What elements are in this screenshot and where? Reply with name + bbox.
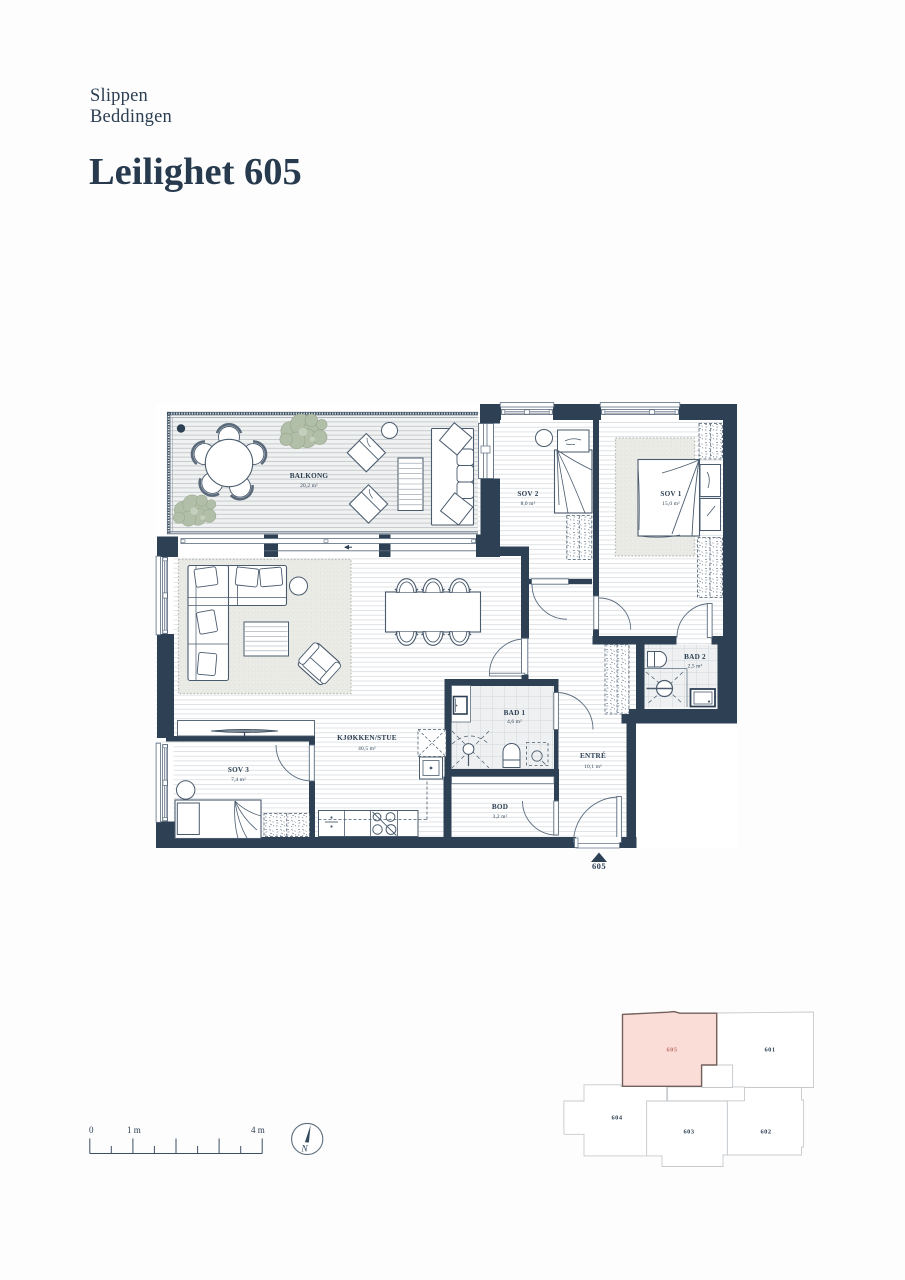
svg-text:605: 605 (592, 861, 606, 871)
svg-text:SOV 2: SOV 2 (517, 490, 538, 498)
svg-text:SOV 1: SOV 1 (660, 490, 681, 498)
svg-text:BALKONG: BALKONG (290, 472, 329, 480)
svg-text:0: 0 (89, 1125, 94, 1135)
svg-text:2,5 m²: 2,5 m² (688, 664, 703, 670)
svg-text:603: 603 (683, 1129, 694, 1136)
svg-text:10,1 m²: 10,1 m² (584, 764, 602, 770)
svg-text:Leilighet 605: Leilighet 605 (89, 151, 302, 193)
svg-text:601: 601 (764, 1047, 775, 1054)
svg-text:15,0 m²: 15,0 m² (662, 501, 680, 507)
svg-text:SOV 3: SOV 3 (228, 766, 249, 774)
svg-text:Beddingen: Beddingen (90, 107, 172, 127)
svg-text:BAD 2: BAD 2 (684, 653, 706, 661)
svg-text:8,0 m²: 8,0 m² (521, 501, 536, 507)
svg-text:3,2 m²: 3,2 m² (493, 814, 508, 820)
svg-text:4 m: 4 m (251, 1125, 265, 1135)
svg-text:605: 605 (666, 1047, 677, 1054)
svg-text:604: 604 (611, 1115, 622, 1122)
svg-text:BOD: BOD (492, 803, 508, 811)
svg-text:1 m: 1 m (127, 1125, 141, 1135)
svg-text:4,6 m²: 4,6 m² (507, 719, 522, 725)
svg-text:N: N (300, 1145, 308, 1155)
svg-text:KJØKKEN/STUE: KJØKKEN/STUE (337, 734, 397, 742)
svg-text:Slippen: Slippen (90, 86, 148, 106)
svg-text:20,2 m²: 20,2 m² (300, 483, 318, 489)
svg-text:602: 602 (760, 1129, 771, 1136)
svg-text:ENTRÉ: ENTRÉ (580, 750, 606, 760)
svg-text:BAD 1: BAD 1 (504, 709, 526, 717)
svg-text:40,5 m²: 40,5 m² (358, 746, 376, 752)
svg-text:7,4 m²: 7,4 m² (231, 777, 246, 783)
